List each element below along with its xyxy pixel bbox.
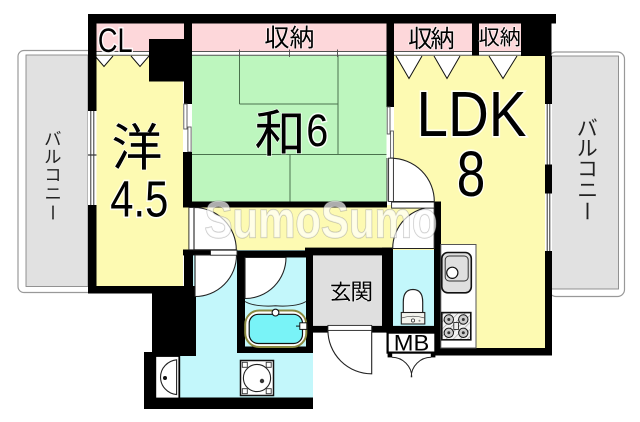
svg-text:6: 6 bbox=[306, 105, 328, 156]
svg-text:CL: CL bbox=[98, 21, 133, 60]
svg-text:SumoSumo: SumoSumo bbox=[205, 192, 438, 250]
svg-text:4.5: 4.5 bbox=[110, 171, 168, 228]
svg-text:MB: MB bbox=[394, 331, 430, 356]
svg-text:8: 8 bbox=[457, 138, 486, 210]
